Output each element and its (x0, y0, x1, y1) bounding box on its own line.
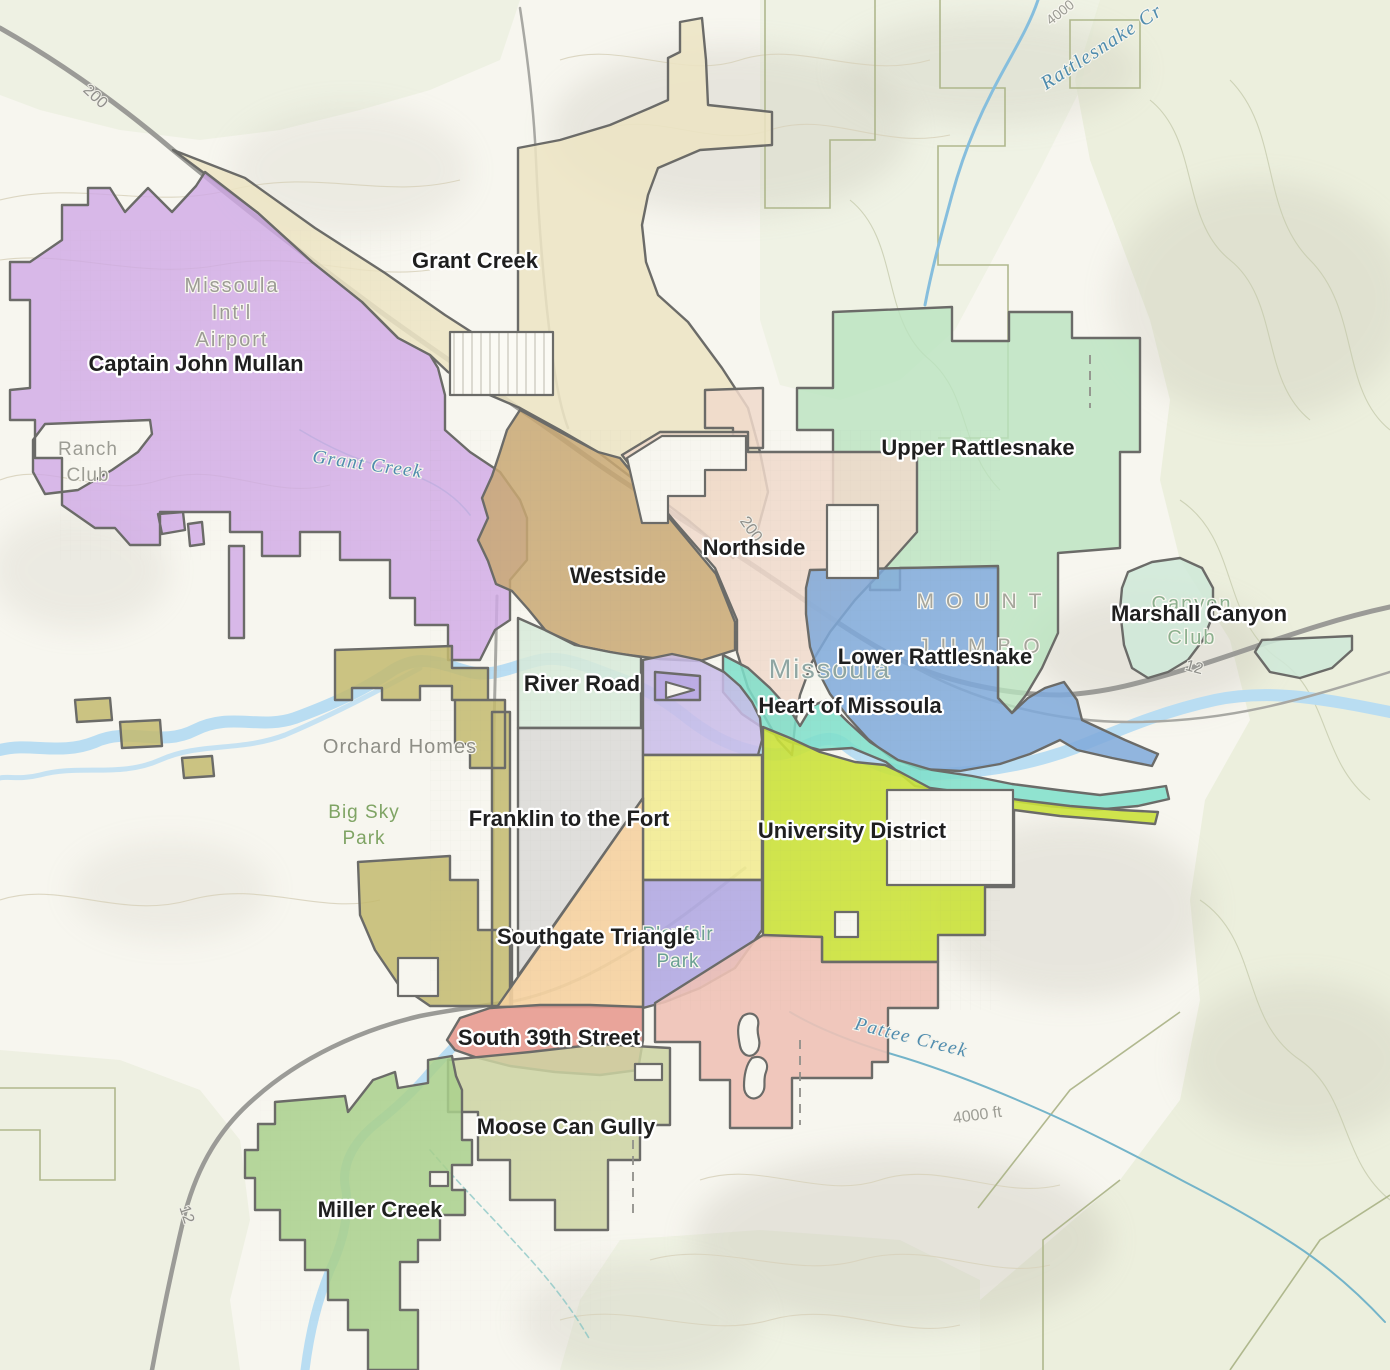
neighborhood-label-miller-creek: Miller Creek (318, 1197, 443, 1222)
place-label-text: Park (656, 951, 699, 972)
neighborhood-label-heart-of-missoula: Heart of Missoula (758, 693, 942, 718)
place-label-text: Missoula (185, 275, 280, 297)
cutout-moose-hole (635, 1064, 662, 1080)
place-label-text: Club (66, 465, 109, 486)
place-label-text: Ranch (58, 439, 118, 460)
place-label-text: Airport (196, 329, 269, 351)
place-label-text: MOUNT (917, 590, 1054, 613)
neighborhood-label-lower-rattlesnake: Lower Rattlesnake (838, 644, 1032, 669)
neighborhood-label-captain-john-mullan: Captain John Mullan (88, 351, 303, 376)
neighborhood-label-westside: Westside (570, 563, 666, 588)
place-label-text: Park (342, 828, 385, 849)
place-label-text: Club (1167, 627, 1216, 649)
neighborhood-label-marshall-canyon: Marshall Canyon (1111, 601, 1287, 626)
neighborhood-label-university-district: University District (758, 818, 947, 843)
place-label-text: Orchard Homes (323, 736, 477, 758)
neighborhood-label-south-39th-street: South 39th Street (458, 1025, 641, 1050)
place-label-orchard-homes: Orchard Homes (323, 736, 477, 758)
missoula-neighborhood-map[interactable]: Grant CreekCaptain John MullanUpper Ratt… (0, 0, 1390, 1370)
neighborhood-label-river-road: River Road (524, 671, 640, 696)
neighborhood-label-upper-rattlesnake: Upper Rattlesnake (881, 435, 1074, 460)
neighborhood-label-southgate-triangle: Southgate Triangle (497, 924, 695, 949)
place-label-text: Int'l (212, 302, 253, 324)
neighborhood-label-grant-creek: Grant Creek (412, 248, 539, 273)
place-label-text: Big Sky (328, 802, 399, 823)
neighborhood-label-moose-can-gully: Moose Can Gully (477, 1114, 656, 1139)
airport-parcel-hatch (450, 332, 553, 395)
neighborhood-label-northside: Northside (703, 535, 806, 560)
map-canvas: Grant CreekCaptain John MullanUpper Ratt… (0, 0, 1390, 1370)
neighborhood-label-franklin-to-the-fort: Franklin to the Fort (469, 806, 670, 831)
